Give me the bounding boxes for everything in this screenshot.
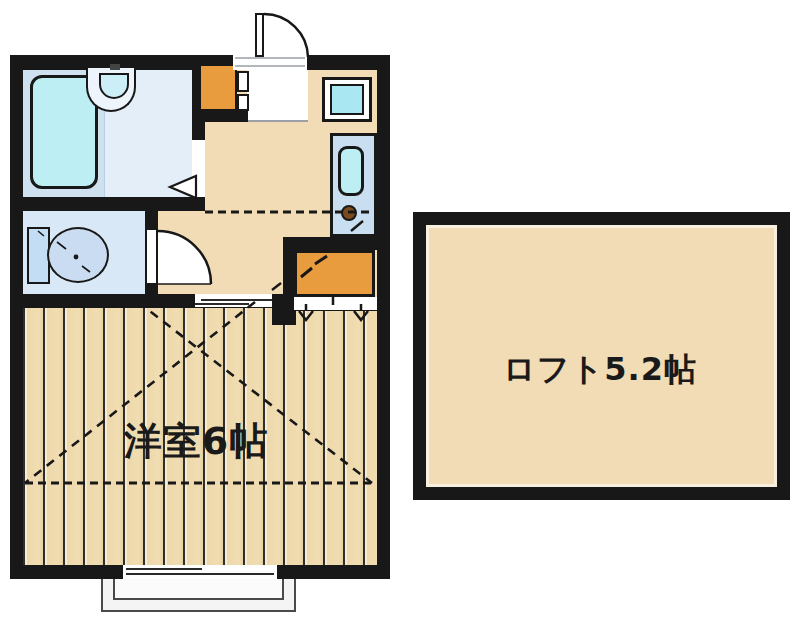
floorplan-canvas: 洋室6帖 ロフト5.2帖 [0, 0, 800, 628]
threshold-lines [235, 58, 305, 66]
entrance-door-swing [264, 14, 308, 57]
loft-ladder-marks [299, 304, 368, 320]
loft-label: ロフト5.2帖 [460, 348, 740, 392]
toilet-bowl-detail [38, 231, 90, 272]
hall-corner-dash [272, 283, 281, 290]
toilet-door-swing [158, 231, 211, 284]
counter-hatch [301, 256, 327, 277]
sink-dash [351, 221, 363, 231]
window-lines [126, 569, 274, 574]
bathroom-door-marker [170, 176, 196, 198]
western-room-label: 洋室6帖 [90, 416, 302, 467]
sliding-door-lines [195, 300, 272, 304]
lineart-overlay [0, 0, 800, 628]
